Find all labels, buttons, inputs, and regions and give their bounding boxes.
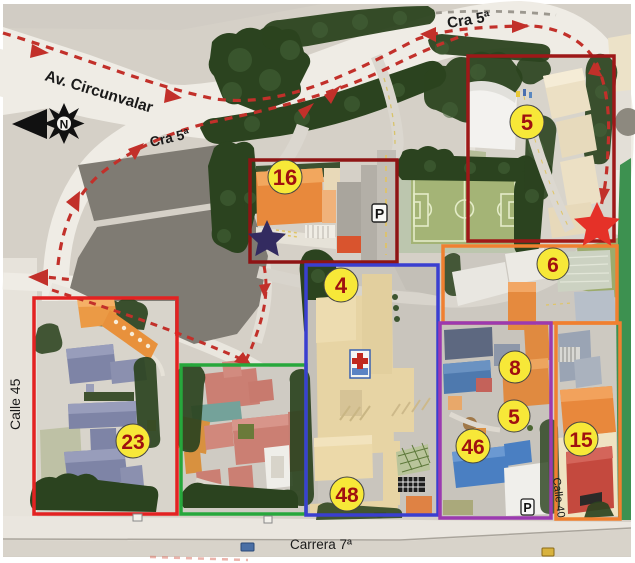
svg-text:N: N [60, 118, 69, 132]
svg-text:5: 5 [508, 406, 520, 429]
svg-text:P: P [523, 501, 531, 515]
svg-text:Calle 45: Calle 45 [7, 378, 23, 430]
svg-text:5: 5 [521, 110, 533, 135]
svg-text:46: 46 [461, 436, 484, 459]
svg-text:P: P [375, 206, 384, 222]
svg-text:6: 6 [547, 254, 559, 277]
svg-text:16: 16 [273, 165, 297, 190]
svg-text:8: 8 [509, 357, 521, 380]
svg-text:48: 48 [335, 484, 359, 507]
svg-text:23: 23 [121, 431, 144, 454]
svg-text:15: 15 [569, 429, 593, 452]
svg-text:4: 4 [335, 273, 348, 298]
svg-text:Carrera 7ª: Carrera 7ª [290, 537, 353, 552]
